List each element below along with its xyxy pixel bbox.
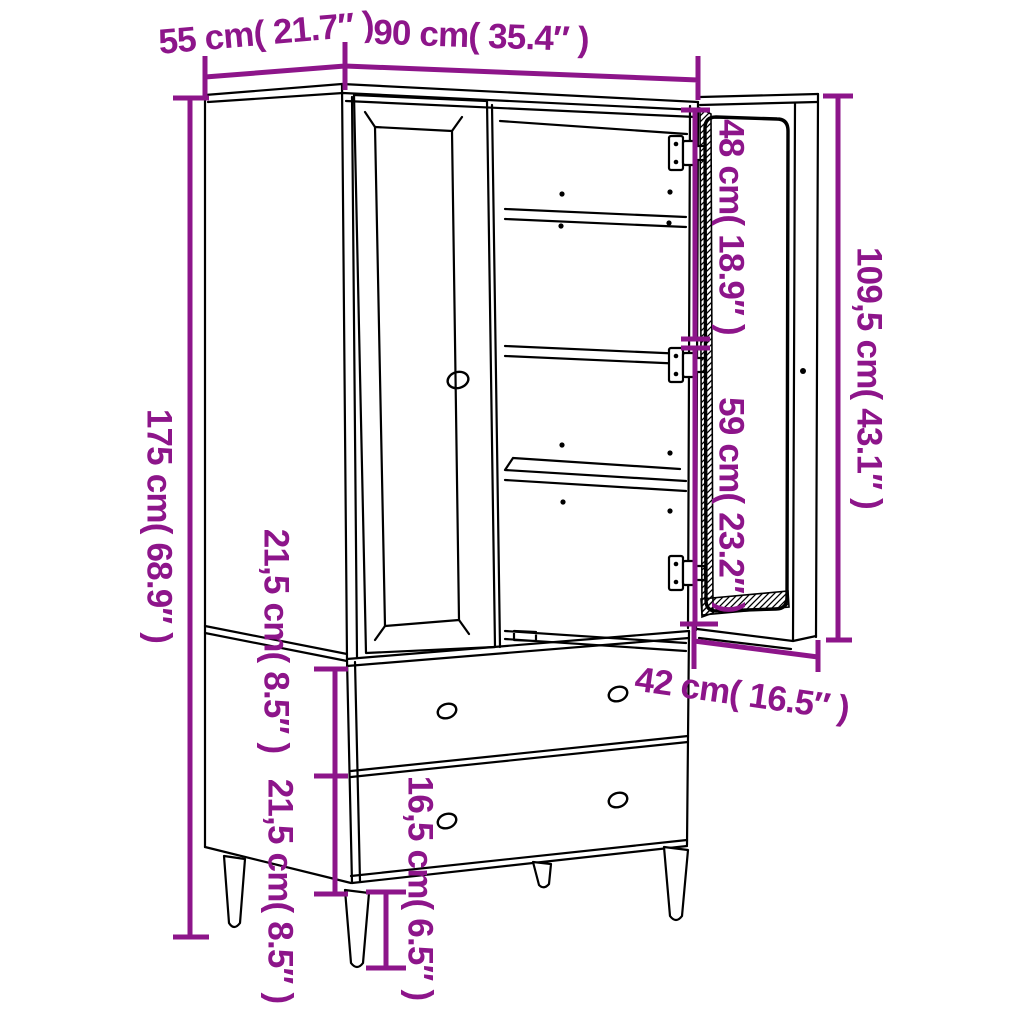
hinge-bottom [669, 556, 705, 590]
leg-back-left [224, 856, 245, 927]
hinge-middle [669, 348, 705, 382]
dim-line-upper-drawer [314, 669, 348, 776]
interior-shelves [500, 121, 687, 651]
dim-label-top-width: 90 cm( 35.4″ ) [373, 13, 590, 60]
shelf-2 [505, 346, 686, 364]
dim-label-total-height: 175 cm( 68.9″ ) [140, 409, 179, 643]
dim-line-lower-drawer [314, 776, 348, 894]
dim-label-upper-drawer: 21,5 cm( 8.5″ ) [257, 529, 296, 754]
dim-line-door-height [823, 96, 853, 640]
drawer1-handle-left [436, 701, 459, 721]
dim-line-drawer-depth [694, 626, 818, 672]
door-top-edges [700, 94, 818, 105]
leg-front-left [345, 890, 369, 967]
drawer1-handle-right [607, 684, 630, 704]
leg-back-right [533, 862, 551, 887]
drawer-front-right-edge [687, 631, 689, 845]
top-edges [205, 84, 698, 117]
closed-left-door [354, 95, 495, 653]
door-stile-edge [793, 103, 795, 640]
dim-label-door-height: 109,5 cm( 43.1″ ) [850, 247, 889, 509]
dim-label-top-depth: 55 cm( 21.7″ ) [157, 4, 375, 62]
dimension-diagram: 55 cm( 21.7″ ) 90 cm( 35.4″ ) 175 cm( 68… [0, 0, 1024, 1024]
shelf-1 [505, 209, 686, 227]
diagram-canvas: 55 cm( 21.7″ ) 90 cm( 35.4″ ) 175 cm( 68… [0, 0, 1024, 1024]
door-panel [375, 127, 459, 626]
left-door-handle [446, 370, 470, 391]
door-back-edge [816, 94, 818, 637]
drawer2-handle-right [607, 790, 630, 810]
interior-ceiling [500, 121, 687, 134]
dim-label-upper-compartment: 48 cm( 18.9″ ) [712, 119, 751, 335]
dim-label-leg-height: 16,5 cm( 6.5″ ) [401, 776, 440, 1001]
dim-line-leg-height [366, 892, 406, 968]
leg-front-right [664, 847, 688, 920]
drawer-divider [351, 736, 688, 777]
dim-label-lower-drawer: 21,5 cm( 8.5″ ) [261, 779, 300, 1004]
right-door-knob [800, 368, 806, 374]
shelf-3 [505, 458, 686, 491]
dim-label-lower-compartment: 59 cm( 23.2″ ) [712, 397, 751, 613]
